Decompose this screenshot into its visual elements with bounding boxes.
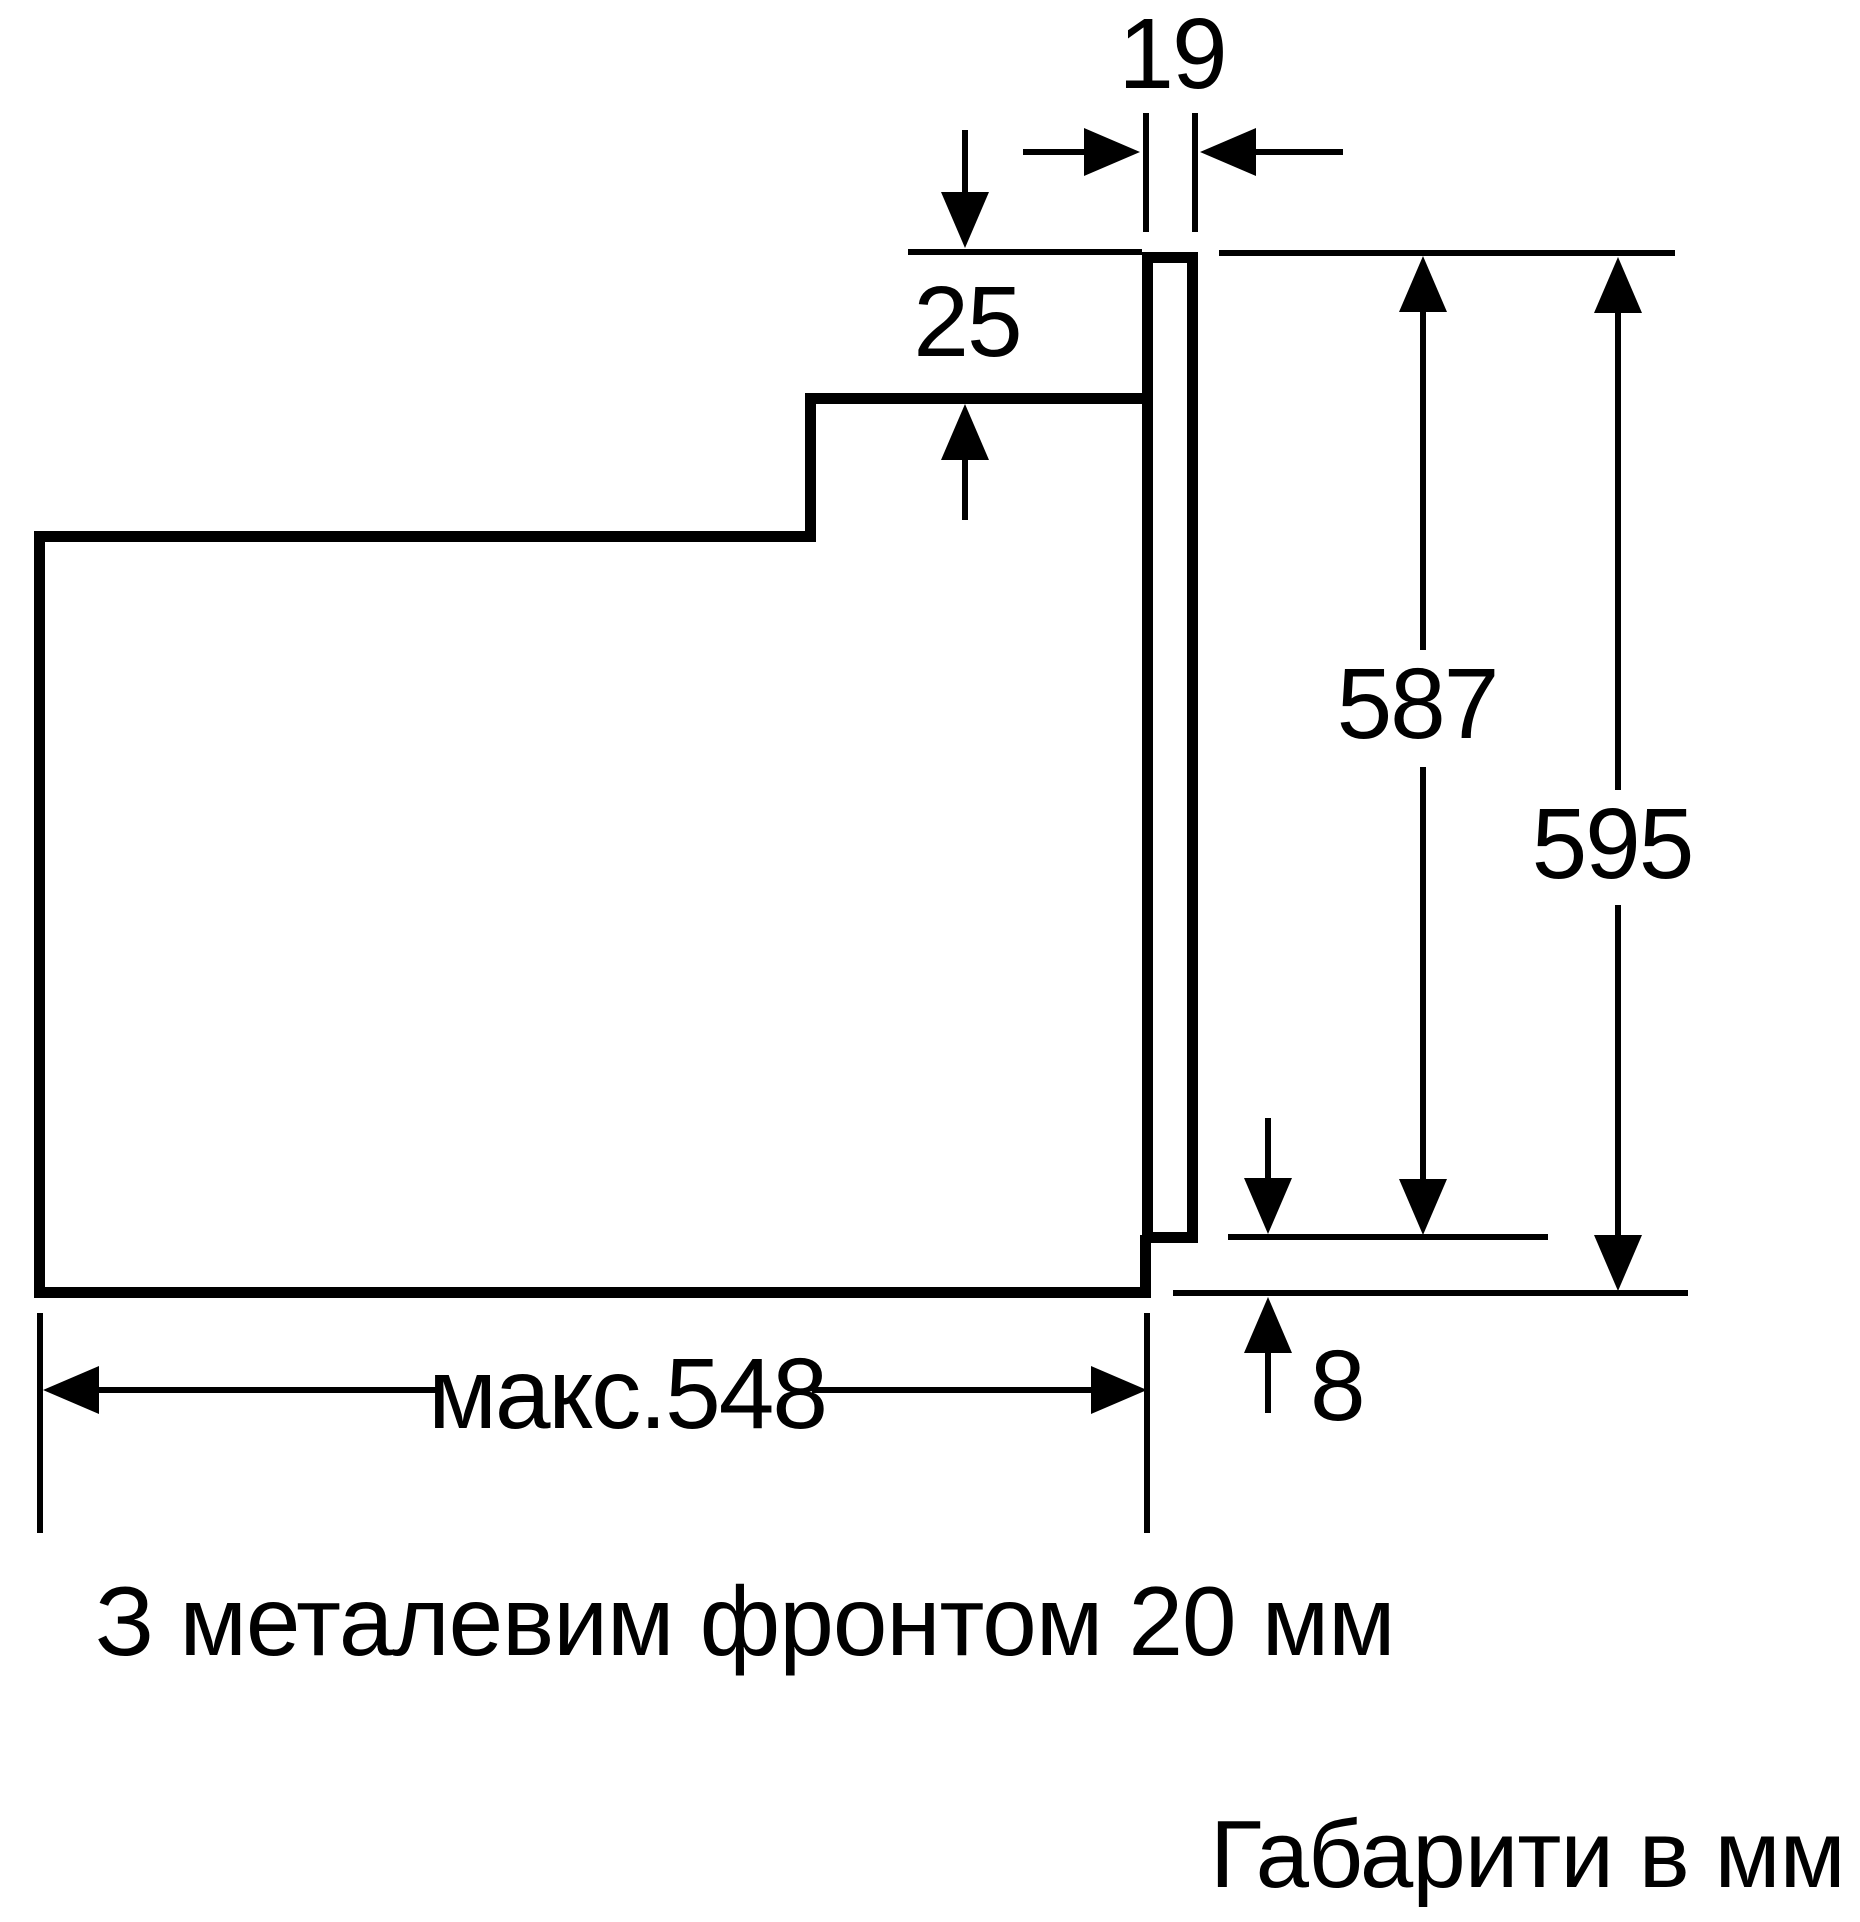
dim-587-line-lower (1420, 767, 1426, 1181)
dim-19-arrowhead-right (1084, 128, 1140, 176)
dim-19-arrow-right-tail (1023, 149, 1093, 155)
step-vertical-line (805, 393, 816, 542)
dim-587-arrowhead-bottom (1399, 1179, 1447, 1235)
dim-19-label: 19 (1118, 2, 1225, 107)
dim-587-arrowhead-top (1399, 256, 1447, 312)
dim-8-label: 8 (1310, 1334, 1364, 1439)
front-lip-line (1140, 1235, 1151, 1298)
dim-595-arrowhead-top (1594, 257, 1642, 313)
dim-25-arrow-up-tail (962, 456, 968, 520)
dim-595-line-upper (1615, 309, 1621, 790)
depth-extension-left (37, 1313, 43, 1533)
dim-max548-label: макс.548 (428, 1342, 826, 1447)
dim-19-arrow-left-tail (1252, 149, 1343, 155)
body-bottom-line (34, 1287, 1151, 1298)
dim-595-arrowhead-bottom (1594, 1235, 1642, 1291)
dim-max548-arrowhead-right (1091, 1366, 1147, 1414)
caption-front-note: З металевим фронтом 20 мм (95, 1570, 1395, 1673)
niche-mid-line-right (1228, 1234, 1548, 1240)
body-left-line (34, 531, 45, 1298)
dim-max548-line-left (96, 1387, 441, 1393)
dim-595-label: 595 (1532, 792, 1693, 897)
dim-19-extension-right (1192, 113, 1198, 232)
dimension-diagram: 19 25 587 595 8 макс.548 З металевим фро… (0, 0, 1860, 1922)
front-panel (1142, 252, 1198, 1243)
dim-587-label: 587 (1337, 652, 1498, 757)
depth-extension-right (1144, 1313, 1150, 1533)
dim-25-arrowhead-up (941, 404, 989, 460)
dim-25-arrow-down-tail (962, 130, 968, 196)
step-top-line (805, 393, 1148, 404)
dim-8-arrowhead-up (1244, 1297, 1292, 1353)
body-top-line (34, 531, 816, 542)
dim-8-arrow-down-tail (1265, 1118, 1271, 1186)
dim-max548-line-right (812, 1387, 1096, 1393)
dim-25-label: 25 (913, 270, 1020, 375)
dim-max548-arrowhead-left (43, 1366, 99, 1414)
dim-8-arrow-up-tail (1265, 1349, 1271, 1413)
footer-units-note: Габарити в мм (1210, 1805, 1845, 1906)
dim-595-line-lower (1615, 905, 1621, 1237)
dim-587-line-upper (1420, 308, 1426, 650)
dim-8-arrowhead-down (1244, 1178, 1292, 1234)
dim-19-arrowhead-left (1200, 128, 1256, 176)
dim-25-arrowhead-down (941, 192, 989, 248)
niche-top-line-left (908, 249, 1142, 255)
niche-top-line-right (1219, 250, 1675, 256)
dim-19-extension-left (1143, 113, 1149, 232)
